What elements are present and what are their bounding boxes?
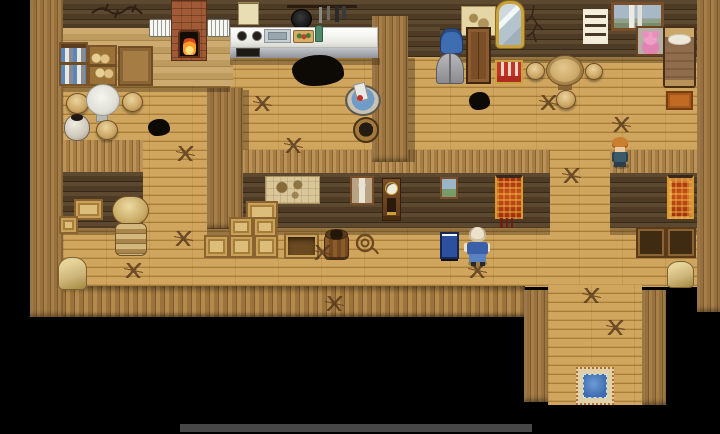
npc-foot bbox=[471, 262, 476, 266]
oven-door bbox=[236, 48, 260, 57]
wall-column bbox=[207, 88, 243, 229]
sink-basin bbox=[268, 32, 287, 40]
scratch-marks bbox=[612, 117, 631, 132]
stove-burner bbox=[252, 31, 262, 41]
grey-coat bbox=[436, 53, 464, 84]
wardrobe[interactable] bbox=[466, 27, 491, 84]
bottom-wall bbox=[30, 286, 525, 317]
floor-stain bbox=[292, 55, 344, 86]
mirror bbox=[496, 1, 524, 48]
column-shadow bbox=[243, 90, 249, 150]
doormat-center bbox=[583, 374, 607, 398]
screen-artifact-bar bbox=[180, 424, 532, 432]
bed-footboard bbox=[665, 80, 694, 86]
round-table bbox=[546, 55, 584, 86]
scratch-marks bbox=[174, 231, 193, 246]
tapestry-right bbox=[667, 175, 694, 219]
npc-body bbox=[612, 152, 628, 162]
hay-roll-top bbox=[112, 196, 149, 225]
clock-pendulum bbox=[387, 198, 396, 215]
barrel-top bbox=[325, 229, 348, 240]
column-shadow bbox=[408, 58, 415, 162]
hanging-knife bbox=[335, 6, 339, 22]
crate bbox=[253, 217, 277, 237]
hanging-knife bbox=[342, 6, 346, 19]
striped-chest[interactable] bbox=[495, 60, 523, 84]
portrait bbox=[350, 176, 374, 205]
hanging-spoon bbox=[327, 6, 330, 20]
crate bbox=[254, 235, 278, 258]
empty-shelf bbox=[666, 227, 696, 258]
npc-villager[interactable] bbox=[609, 135, 631, 169]
shelf-plank bbox=[59, 62, 88, 65]
scratch-marks bbox=[313, 245, 332, 260]
bucket bbox=[353, 117, 379, 143]
wall-map-large bbox=[265, 176, 320, 204]
crate bbox=[229, 217, 253, 237]
wall-top-band bbox=[63, 140, 143, 172]
scratch-marks bbox=[325, 296, 344, 311]
bottle bbox=[315, 25, 323, 42]
sign-board[interactable] bbox=[440, 232, 459, 259]
crate bbox=[59, 216, 78, 234]
empty-shelf bbox=[636, 227, 666, 258]
lattice-window bbox=[583, 9, 608, 44]
floor-stain bbox=[148, 119, 170, 136]
window-shutter-left bbox=[149, 19, 172, 37]
stool bbox=[556, 90, 576, 109]
scratch-marks bbox=[606, 320, 625, 335]
scratch-marks bbox=[284, 138, 303, 153]
crate bbox=[204, 235, 229, 258]
sack bbox=[58, 257, 87, 290]
blue-shirt bbox=[440, 28, 463, 54]
stove-burner bbox=[237, 31, 247, 41]
fire-flame bbox=[183, 36, 196, 55]
white-table bbox=[86, 84, 120, 116]
stool bbox=[122, 92, 143, 112]
scratch-marks bbox=[176, 146, 195, 161]
npc-head bbox=[469, 227, 486, 242]
bear-picture bbox=[636, 26, 665, 56]
hanging-pan bbox=[291, 9, 312, 29]
hay-roll-stack bbox=[115, 223, 147, 256]
npc-foot bbox=[480, 262, 485, 266]
tapestry-drips bbox=[500, 218, 514, 228]
game-viewport[interactable] bbox=[0, 0, 720, 434]
crate bbox=[74, 199, 103, 220]
bed-pillow bbox=[668, 34, 691, 45]
floor-stain bbox=[469, 92, 490, 110]
cupboard bbox=[118, 46, 153, 86]
top-wall-logs bbox=[408, 27, 440, 57]
small-painting bbox=[440, 177, 458, 199]
scratch-marks bbox=[253, 96, 272, 111]
scratch-marks bbox=[562, 168, 581, 183]
corridor-wall-left bbox=[524, 290, 548, 402]
cutting-board bbox=[293, 30, 314, 43]
wall-crack bbox=[522, 4, 546, 44]
outer-wall-right bbox=[697, 0, 720, 312]
corridor-wall-right bbox=[642, 290, 666, 405]
stool bbox=[585, 63, 603, 80]
stool bbox=[526, 62, 545, 80]
npc-legs bbox=[614, 162, 626, 167]
shelf-plank bbox=[88, 64, 117, 67]
window-shutter-right bbox=[207, 19, 230, 37]
scratch-marks bbox=[539, 95, 558, 110]
sack bbox=[667, 261, 694, 288]
pot-mouth bbox=[71, 114, 83, 121]
tapestry-left bbox=[495, 175, 523, 219]
stool bbox=[96, 120, 118, 140]
utensil-rail bbox=[287, 5, 357, 8]
orange-box bbox=[666, 91, 693, 110]
bed-blanket bbox=[665, 46, 694, 80]
rope-coil bbox=[353, 233, 379, 255]
clock-face bbox=[385, 182, 398, 195]
scratch-marks bbox=[124, 263, 143, 278]
hanging-ladle bbox=[319, 7, 322, 23]
laundry-item bbox=[357, 95, 363, 101]
crate bbox=[229, 235, 254, 258]
scratch-marks bbox=[582, 288, 601, 303]
npc-tunic bbox=[469, 254, 486, 262]
npc-elder[interactable] bbox=[463, 224, 491, 268]
vine-decor bbox=[90, 2, 144, 22]
wall-notice bbox=[238, 2, 259, 25]
